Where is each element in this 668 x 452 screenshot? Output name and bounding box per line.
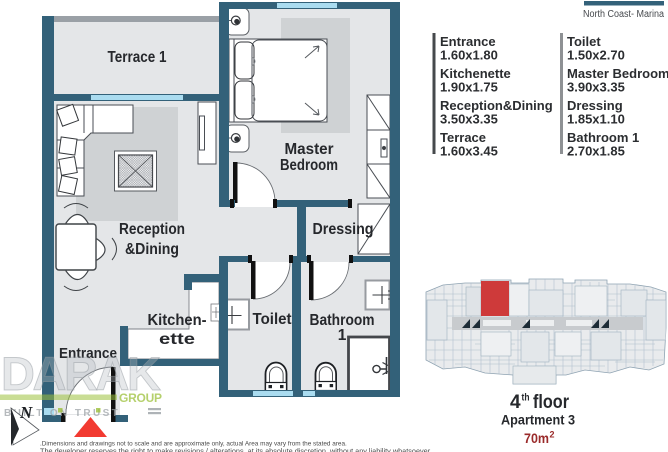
svg-text:th: th	[522, 392, 530, 404]
svg-text:2: 2	[550, 430, 555, 440]
svg-text:N: N	[19, 403, 33, 422]
svg-text:Kitchen-: Kitchen-	[148, 312, 207, 329]
svg-text:1.85x1.10: 1.85x1.10	[567, 112, 625, 127]
svg-text:Terrace 1: Terrace 1	[108, 49, 167, 66]
svg-text:Toilet: Toilet	[253, 311, 292, 328]
svg-text:3.50x3.35: 3.50x3.35	[440, 112, 498, 127]
svg-text:1.90x1.75: 1.90x1.75	[440, 80, 498, 95]
svg-text:North Coast- Marina: North Coast- Marina	[583, 9, 664, 20]
svg-text:ette: ette	[159, 331, 195, 348]
svg-text:&Dining: &Dining	[125, 241, 179, 258]
svg-text:70m: 70m	[524, 430, 549, 446]
svg-text:Dressing: Dressing	[313, 221, 374, 238]
svg-text:1.60x1.80: 1.60x1.80	[440, 48, 498, 63]
svg-text:1.50x2.70: 1.50x2.70	[567, 48, 625, 63]
svg-text:Master: Master	[285, 141, 334, 158]
svg-text:1: 1	[338, 327, 347, 344]
svg-text:1.60x3.45: 1.60x3.45	[440, 144, 498, 159]
svg-text:Apartment 3: Apartment 3	[501, 413, 575, 428]
svg-text:GROUP: GROUP	[119, 391, 162, 405]
svg-text:The developer reserves the rig: The developer reserves the right to make…	[40, 447, 431, 452]
svg-text:Bedroom: Bedroom	[280, 157, 338, 174]
svg-text:floor: floor	[533, 392, 570, 413]
svg-text:3.90x3.35: 3.90x3.35	[567, 80, 625, 95]
svg-text:4: 4	[510, 392, 521, 413]
svg-text:2.70x1.85: 2.70x1.85	[567, 144, 625, 159]
svg-text:Reception: Reception	[119, 221, 185, 238]
